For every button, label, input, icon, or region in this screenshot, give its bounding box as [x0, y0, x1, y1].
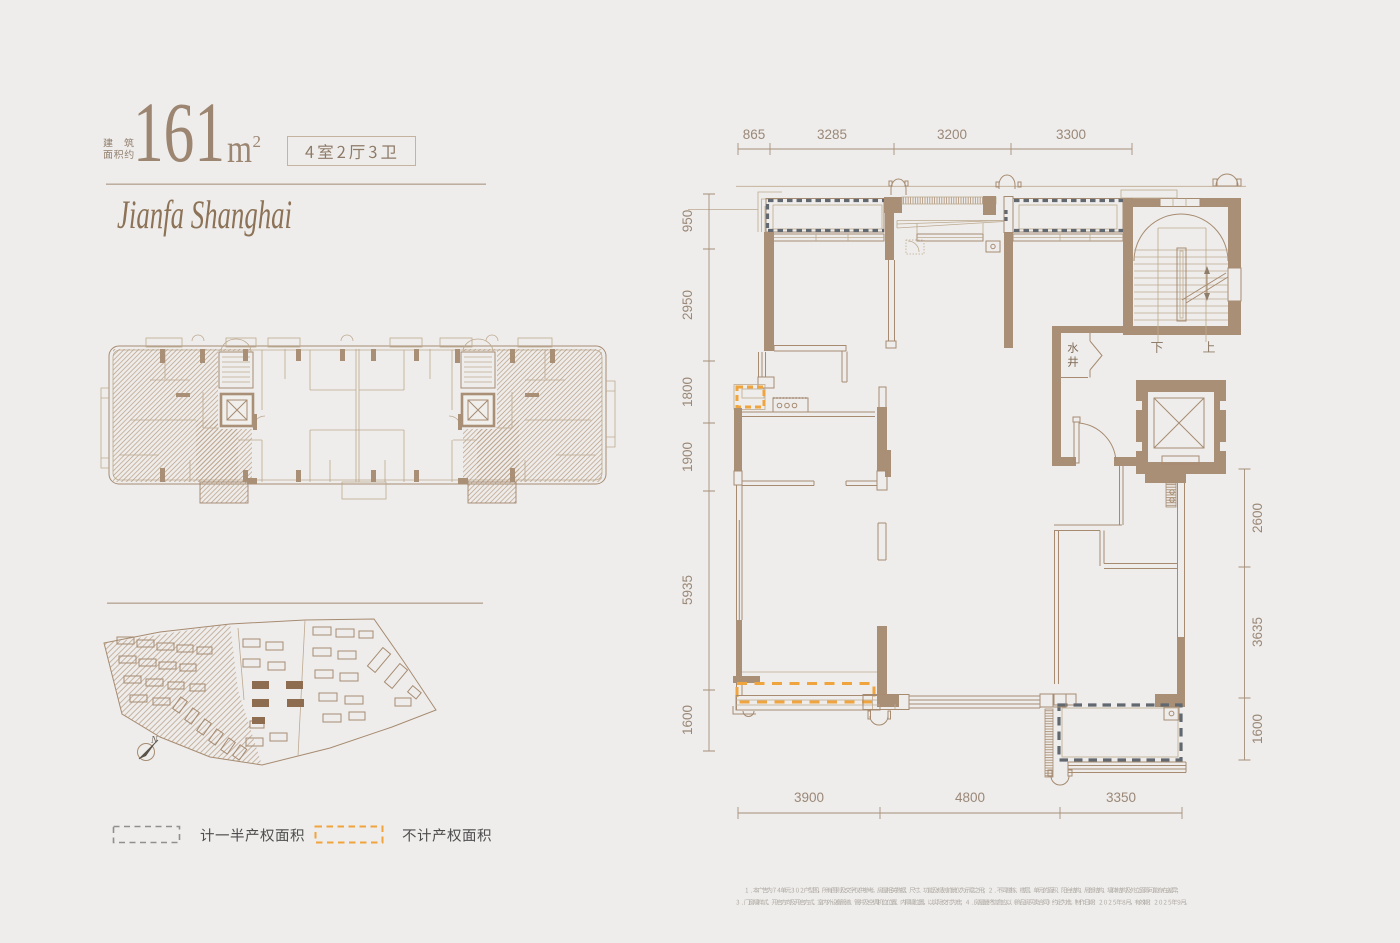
svg-text:1600: 1600 [680, 705, 695, 735]
svg-text:4800: 4800 [955, 790, 985, 805]
svg-text:1600: 1600 [1250, 714, 1265, 744]
svg-text:3200: 3200 [937, 127, 967, 142]
svg-text:950: 950 [680, 210, 695, 233]
svg-text:2600: 2600 [1250, 503, 1265, 533]
svg-text:3300: 3300 [1056, 127, 1086, 142]
svg-text:5935: 5935 [680, 575, 695, 605]
svg-text:3900: 3900 [794, 790, 824, 805]
svg-text:865: 865 [743, 127, 766, 142]
svg-text:3285: 3285 [817, 127, 847, 142]
svg-text:1900: 1900 [680, 442, 695, 472]
svg-text:Jianfa Shanghai: Jianfa Shanghai [117, 192, 292, 237]
svg-text:1800: 1800 [680, 377, 695, 407]
svg-text:N: N [150, 735, 159, 746]
svg-text:161: 161 [133, 84, 225, 180]
svg-text:3635: 3635 [1250, 617, 1265, 647]
svg-text:3350: 3350 [1106, 790, 1136, 805]
svg-text:m: m [227, 126, 252, 171]
svg-text:2950: 2950 [680, 290, 695, 320]
svg-text:2: 2 [253, 132, 262, 151]
